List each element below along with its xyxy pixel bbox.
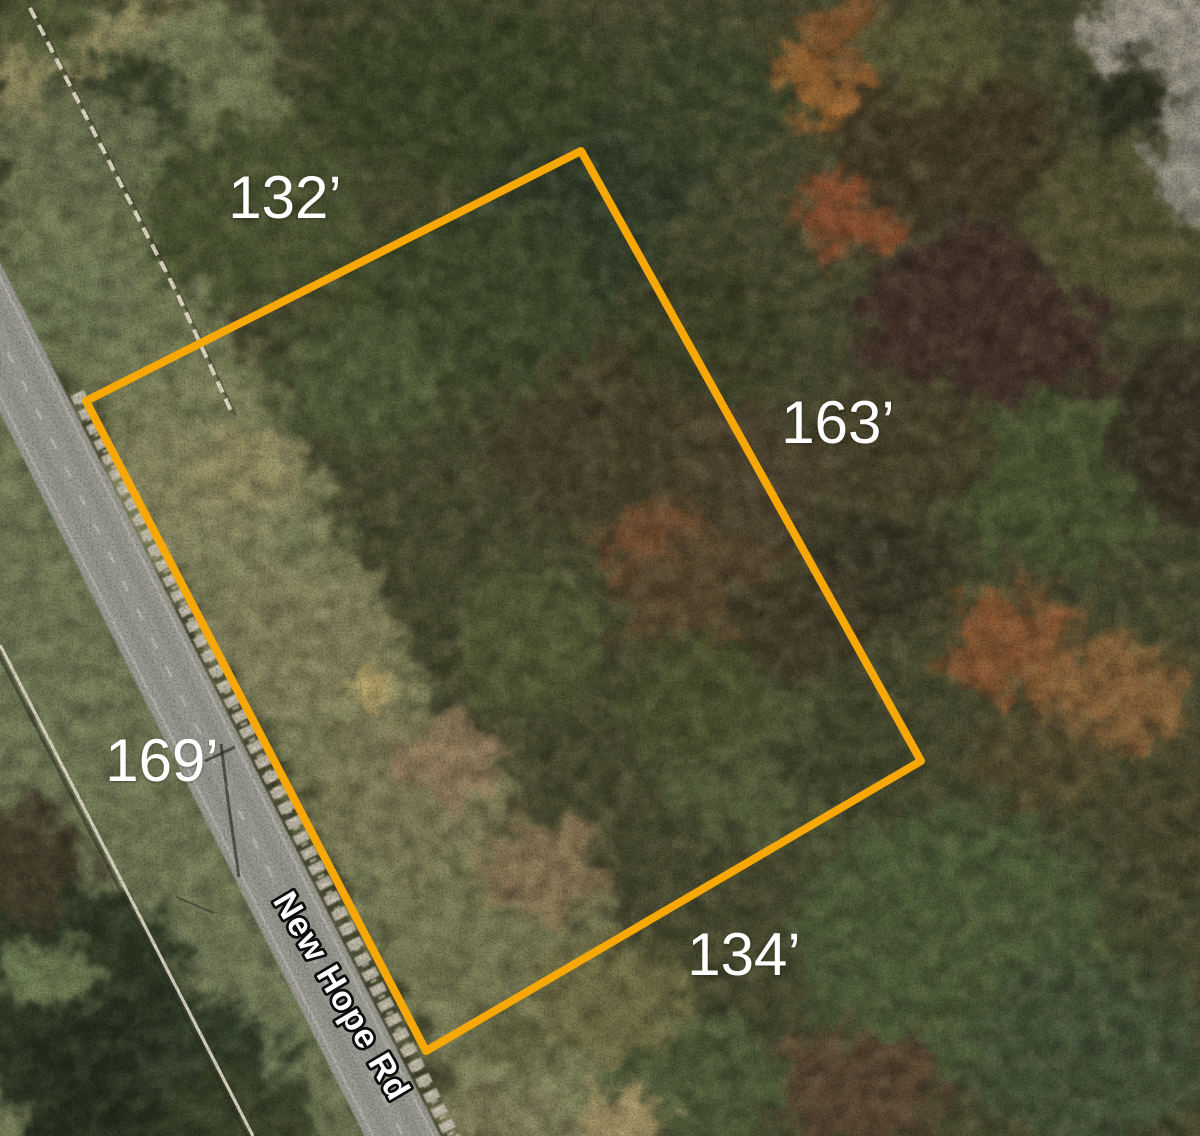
dimension-label-top: 132’ [228, 164, 341, 231]
dimension-label-road-frontage: 169’ [105, 727, 218, 794]
satellite-image: 132’ 163’ 169’ 134’ New Hope Rd [0, 0, 1200, 1136]
dimension-label-right: 163’ [781, 389, 894, 456]
photo-grain-light [0, 0, 1200, 1136]
dimension-label-bottom: 134’ [687, 921, 800, 988]
aerial-parcel-map: 132’ 163’ 169’ 134’ New Hope Rd [0, 0, 1200, 1136]
